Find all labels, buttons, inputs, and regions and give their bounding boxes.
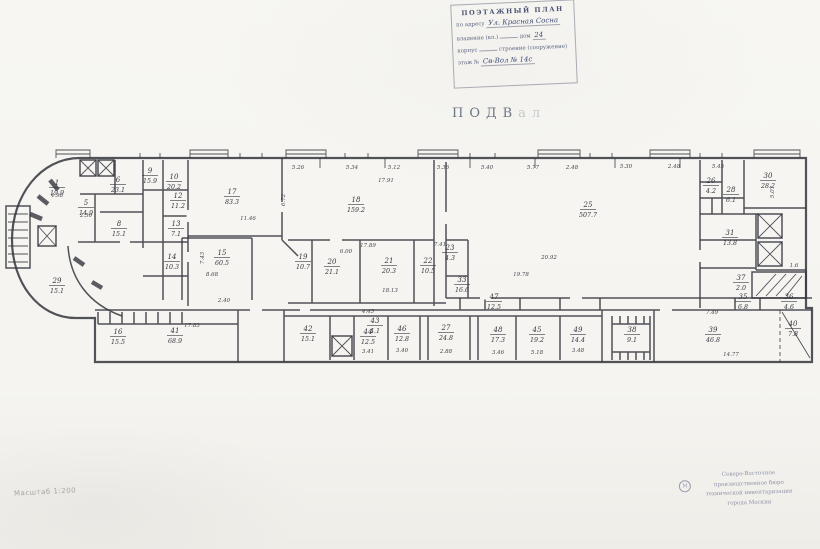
svg-text:39: 39 xyxy=(709,326,718,334)
room-label: 3113.8 xyxy=(722,229,738,247)
door-icon xyxy=(38,196,48,204)
svg-text:37: 37 xyxy=(737,274,746,282)
svg-text:15.1: 15.1 xyxy=(301,336,315,343)
dimension-label: 14.77 xyxy=(723,352,739,358)
svg-text:16: 16 xyxy=(114,328,123,336)
svg-text:9.1: 9.1 xyxy=(627,337,637,344)
dimension-label: 5.26 xyxy=(292,165,305,171)
dimension-label: 2.88 xyxy=(439,349,453,355)
svg-text:10.3: 10.3 xyxy=(165,264,179,271)
dimension-label: 2.48 xyxy=(565,165,579,171)
stair-annex xyxy=(6,206,30,268)
dimension-label: 3.48 xyxy=(572,348,585,354)
room-label: 1020.2 xyxy=(166,173,182,191)
svg-text:20.2: 20.2 xyxy=(166,184,181,191)
svg-text:12: 12 xyxy=(174,192,183,200)
svg-text:38: 38 xyxy=(628,326,637,334)
dimension-label: 3.46 xyxy=(492,350,505,356)
svg-text:60.5: 60.5 xyxy=(215,260,229,267)
dimension-label: 5.34 xyxy=(346,165,359,171)
room-label: 4215.1 xyxy=(300,325,316,343)
svg-text:29: 29 xyxy=(52,277,62,285)
room-label: 389.1 xyxy=(624,326,640,344)
svg-text:26: 26 xyxy=(706,177,716,185)
door-openings xyxy=(120,202,700,310)
svg-text:15.1: 15.1 xyxy=(50,288,64,295)
svg-text:4.3: 4.3 xyxy=(444,255,455,262)
room-label: 2724.8 xyxy=(438,324,454,342)
svg-text:10.5: 10.5 xyxy=(421,268,435,275)
svg-text:1: 1 xyxy=(55,179,59,187)
interior-walls-middle xyxy=(182,158,700,308)
door-icon xyxy=(92,282,102,288)
svg-text:36: 36 xyxy=(785,293,794,301)
interior-walls-bottom xyxy=(95,298,812,362)
room-label: 407.8 xyxy=(785,320,801,338)
svg-text:15.5: 15.5 xyxy=(111,339,125,346)
dimension-label: 7.49 xyxy=(706,310,719,316)
dimension-label: 5.07 xyxy=(770,185,776,198)
svg-text:40: 40 xyxy=(788,320,798,328)
room-label: 4519.2 xyxy=(529,326,545,344)
svg-text:21: 21 xyxy=(384,257,394,265)
room-label: 18159.2 xyxy=(347,196,365,214)
svg-text:20.3: 20.3 xyxy=(381,268,396,275)
room-label: 1410.3 xyxy=(164,253,180,271)
svg-text:19.2: 19.2 xyxy=(530,337,544,344)
room-label: 372.0 xyxy=(733,274,749,292)
dimension-label: 11.46 xyxy=(240,216,256,222)
svg-text:17.3: 17.3 xyxy=(491,337,505,344)
svg-text:6: 6 xyxy=(116,176,121,184)
svg-text:159.2: 159.2 xyxy=(347,207,365,214)
dimension-label: 17.83 xyxy=(184,323,200,329)
room-label: 25507.7 xyxy=(579,201,597,219)
svg-text:14: 14 xyxy=(168,253,177,261)
svg-text:46.8: 46.8 xyxy=(705,337,720,344)
svg-text:507.7: 507.7 xyxy=(579,212,597,219)
svg-text:12.5: 12.5 xyxy=(361,339,375,346)
dimension-label: 3.41 xyxy=(362,349,374,355)
svg-text:68.9: 68.9 xyxy=(168,338,182,345)
dimension-label: 18.13 xyxy=(382,288,398,294)
dimension-label: 5.40 xyxy=(481,165,494,171)
svg-text:41: 41 xyxy=(170,327,180,335)
svg-text:15.1: 15.1 xyxy=(112,231,126,238)
dimension-label: 6.00 xyxy=(340,249,353,255)
svg-text:16.6: 16.6 xyxy=(455,287,469,294)
svg-text:8: 8 xyxy=(117,220,122,228)
room-label: 1560.5 xyxy=(214,249,230,267)
svg-text:28: 28 xyxy=(726,186,736,194)
svg-text:4.6: 4.6 xyxy=(783,304,794,311)
room-label: 2915.1 xyxy=(49,277,65,295)
door-icon xyxy=(74,258,84,265)
dimension-label: 1.6 xyxy=(790,263,799,269)
dimension-label: 2.40 xyxy=(217,298,231,304)
svg-text:45: 45 xyxy=(532,326,542,334)
dimension-label: 20.92 xyxy=(540,255,557,261)
round-end-inner-wall xyxy=(68,246,122,316)
room-label: 2120.3 xyxy=(381,257,397,275)
svg-text:49: 49 xyxy=(573,326,583,334)
svg-text:33: 33 xyxy=(458,276,467,284)
svg-text:11.2: 11.2 xyxy=(171,203,185,210)
room-label: 137.1 xyxy=(168,220,184,238)
room-label: 364.6 xyxy=(781,293,797,311)
svg-text:31: 31 xyxy=(726,229,735,237)
svg-text:30: 30 xyxy=(764,172,773,180)
svg-text:9: 9 xyxy=(148,167,153,175)
dimension-label: 2.48 xyxy=(667,164,681,170)
svg-text:19: 19 xyxy=(299,253,308,261)
dimension-label: 4.45 xyxy=(361,309,375,315)
svg-text:10: 10 xyxy=(170,173,179,181)
dimension-label: 7.43 xyxy=(200,251,206,264)
room-label: 4712.5 xyxy=(486,293,502,311)
room-label: 286.1 xyxy=(723,186,739,204)
room-label: 4914.4 xyxy=(570,326,586,344)
building-outline xyxy=(12,158,812,362)
svg-text:15.9: 15.9 xyxy=(143,178,157,185)
room-label: 1211.2 xyxy=(170,192,186,210)
svg-text:27: 27 xyxy=(441,324,451,332)
dimension-label: 19.78 xyxy=(513,272,529,278)
svg-text:14.4: 14.4 xyxy=(571,337,585,344)
svg-text:4.2: 4.2 xyxy=(705,188,716,195)
stair-treads-icon xyxy=(8,214,28,262)
svg-text:22: 22 xyxy=(423,257,433,265)
dimension-label: 7.41 xyxy=(434,242,446,248)
room-label: 623.1 xyxy=(110,176,126,194)
svg-text:20: 20 xyxy=(327,258,337,266)
room-label: 915.9 xyxy=(142,167,158,185)
svg-text:6.8: 6.8 xyxy=(738,304,748,311)
svg-text:10.7: 10.7 xyxy=(296,264,310,271)
svg-text:43: 43 xyxy=(370,317,380,325)
room-label: 2021.1 xyxy=(324,258,340,276)
svg-text:21.1: 21.1 xyxy=(324,269,339,276)
svg-text:12.5: 12.5 xyxy=(487,304,501,311)
svg-text:7.8: 7.8 xyxy=(788,331,798,338)
room-label: 264.2 xyxy=(703,177,719,195)
dimension-label: 5.12 xyxy=(388,165,401,171)
svg-text:35: 35 xyxy=(739,293,748,301)
room-label: 4817.3 xyxy=(490,326,506,344)
dimension-label: 17.89 xyxy=(360,243,376,249)
bureau-stamp: М Северо-Восточное производственное бюро… xyxy=(682,468,815,511)
room-label: 1783.3 xyxy=(224,188,240,206)
svg-text:6.1: 6.1 xyxy=(726,197,736,204)
window-ticks xyxy=(140,153,722,168)
floor-plan-svg: 119.9514.9623.1815.12915.1915.91020.2121… xyxy=(0,0,820,549)
svg-text:13.8: 13.8 xyxy=(723,240,737,247)
svg-text:5: 5 xyxy=(84,199,89,207)
svg-text:25: 25 xyxy=(583,201,593,209)
dimension-label: 5.36 xyxy=(437,165,450,171)
svg-text:47: 47 xyxy=(489,293,499,301)
dimension-label: 17.91 xyxy=(378,178,394,184)
dimension-label: 5.45 xyxy=(712,164,725,170)
svg-text:13: 13 xyxy=(172,220,181,228)
dimension-label: 3.40 xyxy=(396,348,409,354)
svg-text:18: 18 xyxy=(352,196,361,204)
dimension-label: 2.50 xyxy=(79,213,93,219)
svg-text:12.8: 12.8 xyxy=(395,336,409,343)
stairs-icon xyxy=(752,272,806,298)
room-label: 815.1 xyxy=(111,220,127,238)
room-label: 3946.8 xyxy=(705,326,721,344)
svg-text:42: 42 xyxy=(303,325,313,333)
svg-text:46: 46 xyxy=(397,325,407,333)
svg-text:15: 15 xyxy=(218,249,227,257)
svg-text:2.0: 2.0 xyxy=(735,285,746,292)
dimension-label: 8.68 xyxy=(206,272,219,278)
svg-text:83.3: 83.3 xyxy=(225,199,239,206)
svg-text:24.8: 24.8 xyxy=(438,335,453,342)
svg-text:44: 44 xyxy=(363,328,373,336)
dimension-label: 5.18 xyxy=(531,350,544,356)
svg-text:7.1: 7.1 xyxy=(171,231,181,238)
svg-text:48: 48 xyxy=(493,326,503,334)
dimension-label: 5.30 xyxy=(620,164,633,170)
room-label: 4168.9 xyxy=(167,327,183,345)
room-label: 356.8 xyxy=(735,293,751,311)
room-label: 1615.5 xyxy=(110,328,126,346)
dimension-label: 5.77 xyxy=(527,165,540,171)
interior-walls-right xyxy=(700,160,812,298)
dimension-label: 6.72 xyxy=(281,193,287,206)
svg-text:17: 17 xyxy=(228,188,237,196)
svg-text:23.1: 23.1 xyxy=(110,187,125,194)
door-icon xyxy=(30,214,42,219)
room-label: 4612.8 xyxy=(394,325,410,343)
facade-bays xyxy=(56,150,800,158)
dimension-label: 4.98 xyxy=(50,193,64,199)
